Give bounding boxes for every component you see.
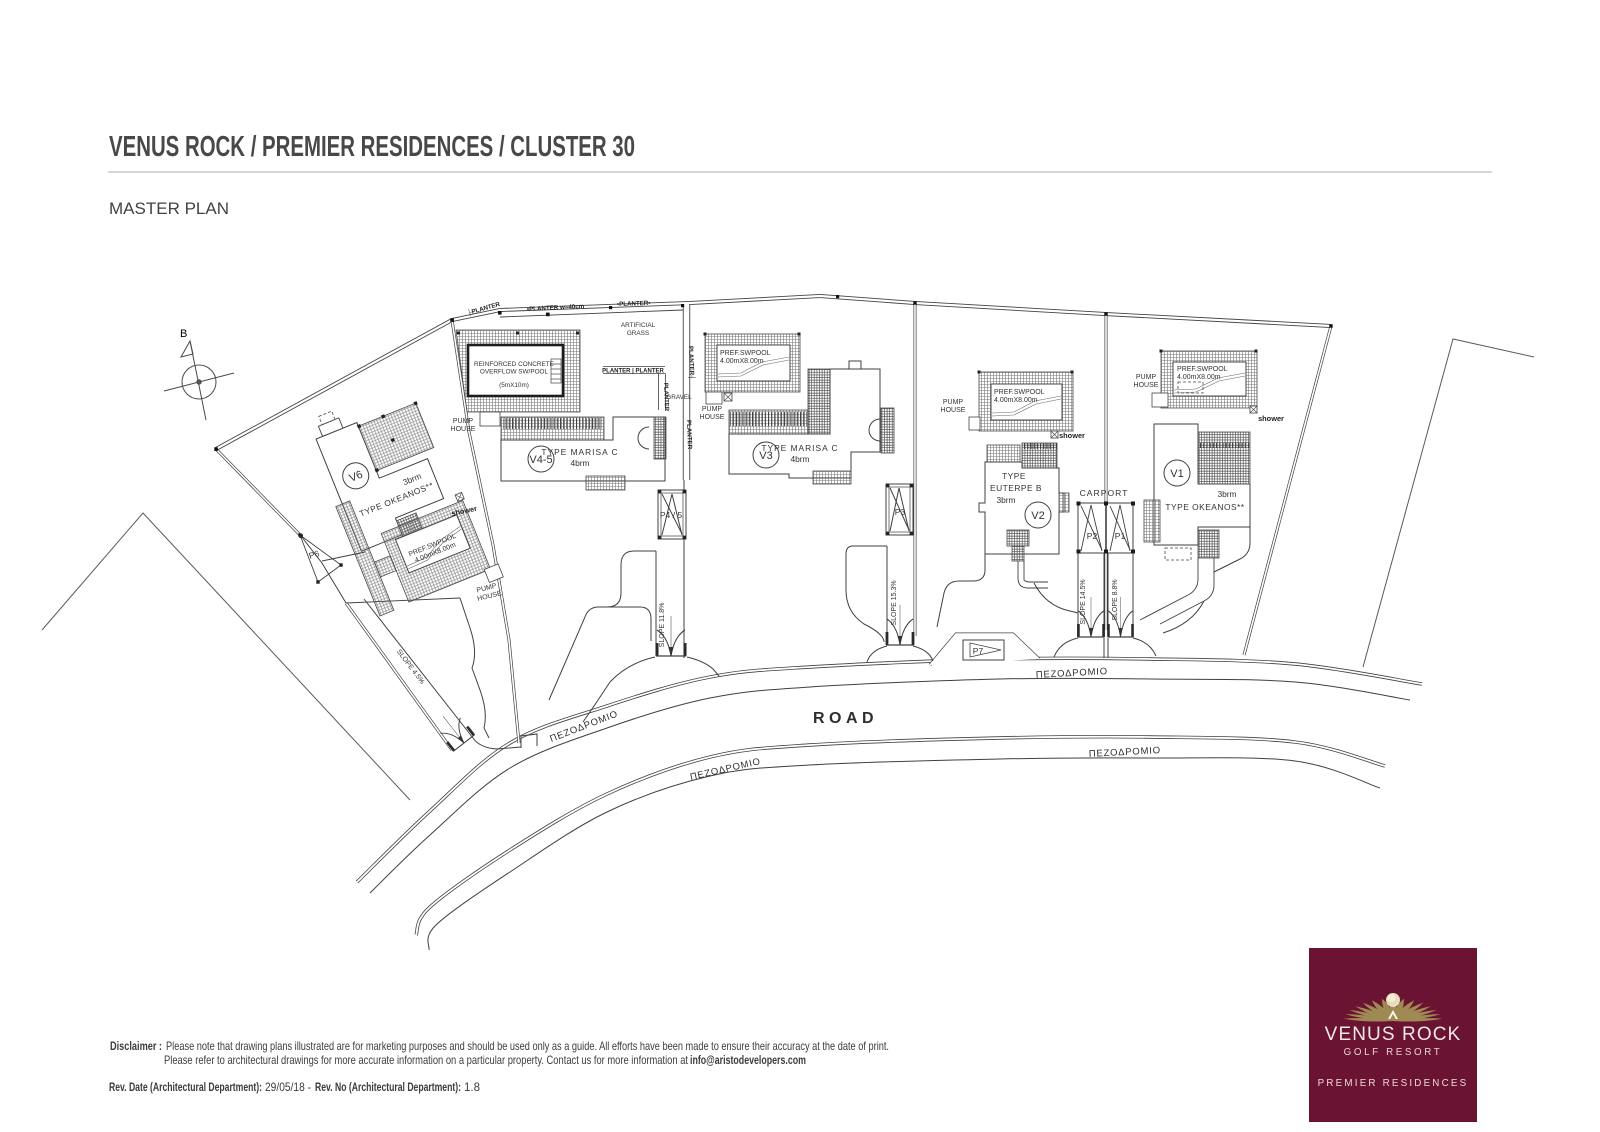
svg-text:PUMP: PUMP <box>453 418 474 425</box>
svg-text:HOUSE: HOUSE <box>1134 382 1159 389</box>
svg-text:SLOPE 14.5%: SLOPE 14.5% <box>1080 579 1087 624</box>
svg-text:B: B <box>180 328 187 340</box>
svg-text:4.00mX8.00m: 4.00mX8.00m <box>1177 374 1221 381</box>
svg-text:V1: V1 <box>1170 468 1183 480</box>
svg-text:PUMP: PUMP <box>1136 374 1157 381</box>
svg-text:3brm: 3brm <box>996 495 1015 505</box>
svg-text:PREF.SWPOOL: PREF.SWPOOL <box>1177 366 1228 373</box>
svg-text:shower: shower <box>1059 431 1085 440</box>
svg-text:shower: shower <box>1258 414 1284 423</box>
svg-text:GOLF RESORT: GOLF RESORT <box>1344 1047 1443 1058</box>
svg-text:SLOPE 15.3%: SLOPE 15.3% <box>891 580 898 625</box>
svg-text:4brm: 4brm <box>790 454 809 464</box>
svg-text:P1: P1 <box>1115 531 1126 541</box>
svg-text:Disclaimer :: Disclaimer : <box>110 1039 162 1053</box>
svg-text:MASTER PLAN: MASTER PLAN <box>109 200 229 218</box>
svg-text:TYPE OKEANOS**: TYPE OKEANOS** <box>1165 502 1244 512</box>
svg-text:Please refer to architectural: Please refer to architectural drawings f… <box>164 1053 689 1067</box>
svg-text:4brm: 4brm <box>570 458 589 468</box>
svg-text:HOUSE: HOUSE <box>941 407 966 414</box>
svg-text:29/05/18 -: 29/05/18 - <box>265 1080 311 1094</box>
svg-text:VENUS ROCK / PREMIER RESIDENCE: VENUS ROCK / PREMIER RESIDENCES / CLUSTE… <box>109 131 635 163</box>
svg-text:Please note that drawing plans: Please note that drawing plans illustrat… <box>166 1039 889 1053</box>
svg-text:4.00mX8.00m: 4.00mX8.00m <box>994 397 1038 404</box>
svg-text:CARPORT: CARPORT <box>1080 488 1129 498</box>
svg-text:EUTERPE B: EUTERPE B <box>990 483 1042 493</box>
svg-text:TYPE MARISA C: TYPE MARISA C <box>761 443 838 453</box>
svg-text:GRASS: GRASS <box>627 330 649 337</box>
svg-text:▪PLANTER▪: ▪PLANTER▪ <box>617 300 651 308</box>
svg-text:(5mX10m): (5mX10m) <box>499 382 529 389</box>
svg-text:TYPE: TYPE <box>1002 471 1026 481</box>
svg-text:REINFORCED CONCRETE: REINFORCED CONCRETE <box>474 361 554 368</box>
svg-text:SLOPE 11.8%: SLOPE 11.8% <box>659 603 666 648</box>
svg-text:TYPE MARISA C: TYPE MARISA C <box>541 447 618 457</box>
svg-text:HOUSE: HOUSE <box>451 426 476 433</box>
svg-text:4.00mX8.00m: 4.00mX8.00m <box>720 358 764 365</box>
svg-text:P4 / 5: P4 / 5 <box>660 510 682 520</box>
svg-text:P2: P2 <box>1087 531 1098 541</box>
svg-text:PLANTER | PLANTER: PLANTER | PLANTER <box>602 369 664 375</box>
svg-text:VENUS ROCK: VENUS ROCK <box>1325 1024 1462 1045</box>
svg-text:PREMIER RESIDENCES: PREMIER RESIDENCES <box>1318 1078 1469 1089</box>
svg-text:V2: V2 <box>1031 510 1044 522</box>
svg-text:3brm: 3brm <box>1217 489 1236 499</box>
svg-text:P7: P7 <box>973 646 984 656</box>
svg-text:PREF.SWPOOL: PREF.SWPOOL <box>994 389 1045 396</box>
svg-text:GRAVEL: GRAVEL <box>666 394 692 401</box>
svg-text:PLANTER: PLANTER <box>685 420 693 450</box>
svg-text:PUMP: PUMP <box>702 406 723 413</box>
svg-text:PLANTER┤: PLANTER┤ <box>687 346 696 380</box>
svg-text:SLOPE 8.8%: SLOPE 8.8% <box>1112 579 1119 620</box>
svg-text:OVERFLOW SW/POOL: OVERFLOW SW/POOL <box>480 369 549 376</box>
svg-text:ARTIFICIAL: ARTIFICIAL <box>621 322 656 329</box>
svg-text:PUMP: PUMP <box>943 399 964 406</box>
svg-text:info@aristodevelopers.com: info@aristodevelopers.com <box>690 1053 806 1067</box>
svg-text:Rev. Date (Architectural Depar: Rev. Date (Architectural Department): <box>109 1080 262 1094</box>
svg-text:PREF.SWPOOL: PREF.SWPOOL <box>720 350 771 357</box>
svg-text:P3: P3 <box>895 507 906 517</box>
svg-text:ROAD: ROAD <box>813 710 878 727</box>
svg-text:1.8: 1.8 <box>464 1080 480 1094</box>
svg-text:HOUSE: HOUSE <box>700 414 725 421</box>
svg-text:Rev. No (Architectural Departm: Rev. No (Architectural Department): <box>315 1080 461 1094</box>
